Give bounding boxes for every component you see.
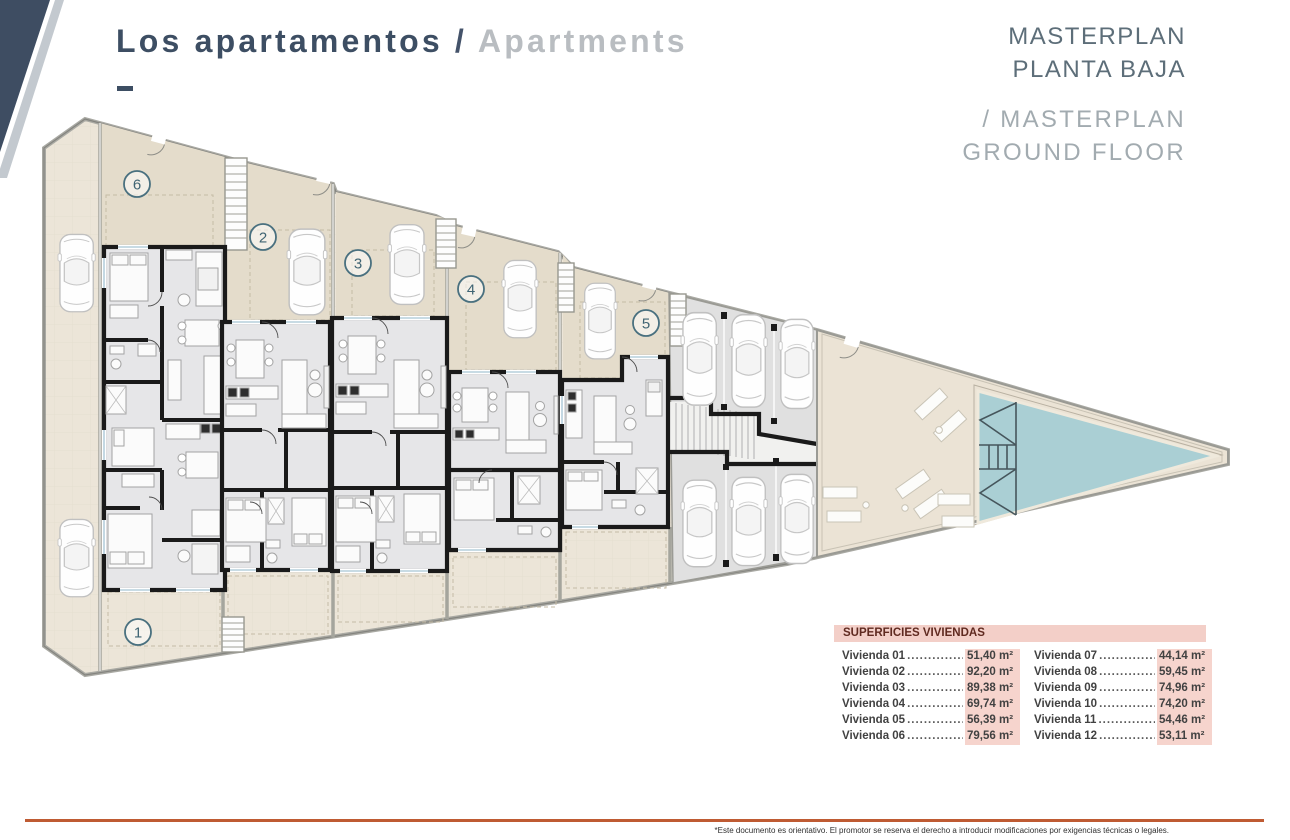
- svg-text:4: 4: [467, 282, 475, 299]
- svg-text:1: 1: [134, 625, 142, 642]
- svg-text:5: 5: [642, 316, 650, 333]
- svg-text:6: 6: [133, 177, 141, 194]
- svg-text:2: 2: [259, 230, 267, 247]
- svg-text:3: 3: [354, 256, 362, 273]
